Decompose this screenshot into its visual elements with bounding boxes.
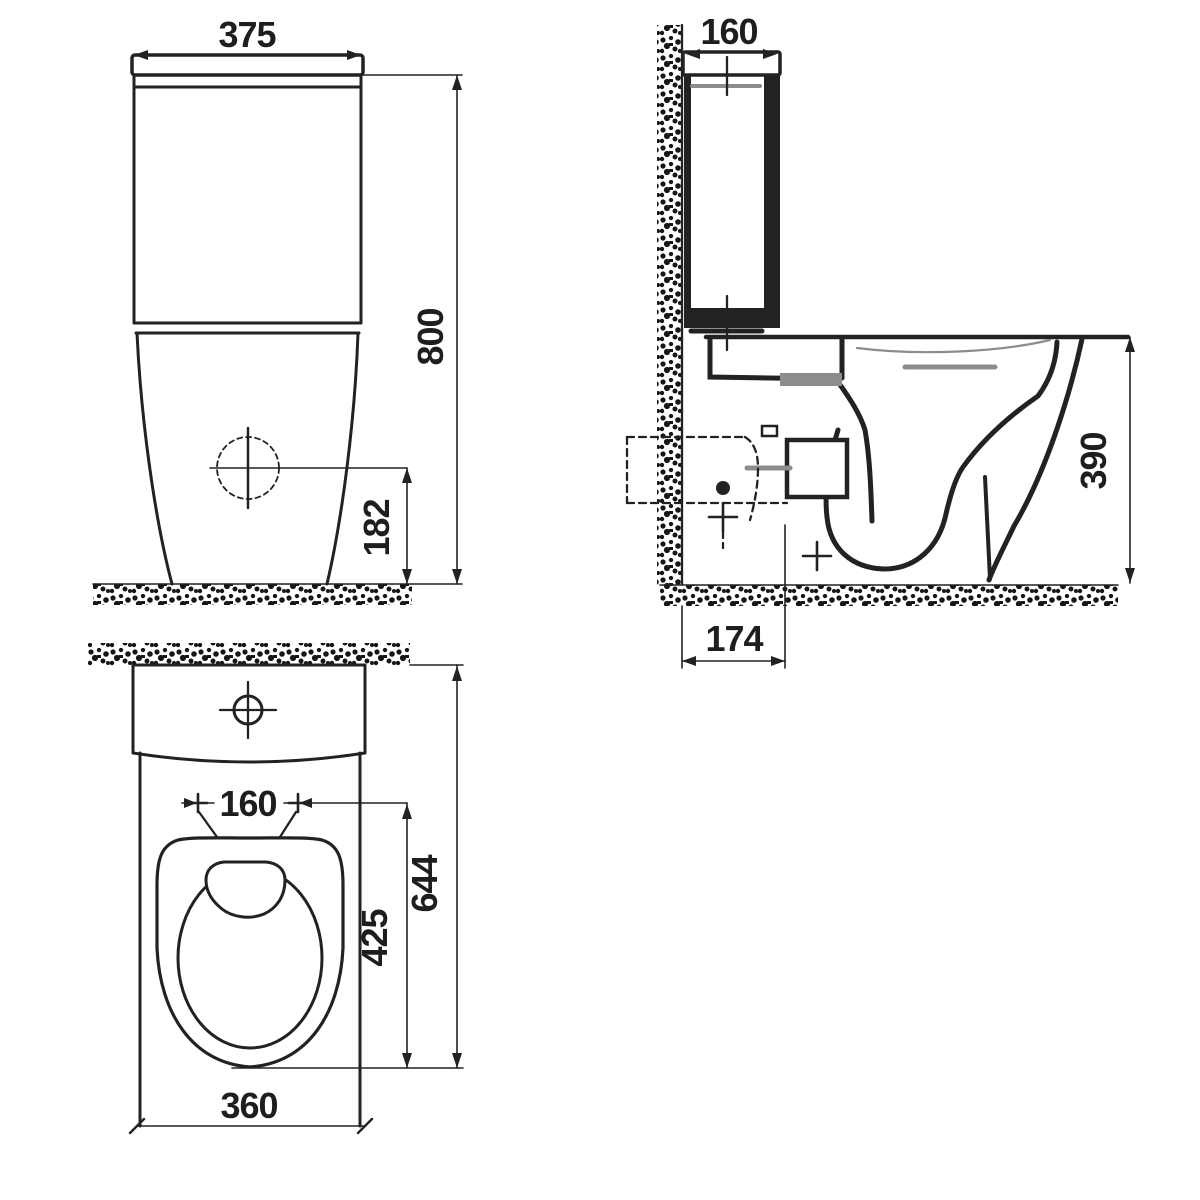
foot-front-line <box>985 477 990 579</box>
vertical-outlet-plus-mark <box>803 542 831 570</box>
front-view: 375 800 182 <box>93 14 462 605</box>
rear-outer-profile <box>989 339 1082 580</box>
side-floor-hatch <box>660 585 1118 606</box>
dim-arrow <box>402 1053 412 1068</box>
toilet-dimension-drawing: 375 800 182 160 <box>0 0 1200 1200</box>
hidden-outlet-fitting <box>762 426 777 436</box>
cistern-front-curve <box>133 753 365 762</box>
dim-label-rim-height: 390 <box>1073 432 1114 489</box>
cistern-lid-front <box>132 55 363 75</box>
seat-hinge-gray <box>780 373 842 386</box>
outlet-socket-section <box>787 440 847 497</box>
dim-label-inlet-height: 182 <box>356 499 397 556</box>
bowl-left-profile <box>137 333 172 584</box>
dim-arrow <box>1125 568 1135 583</box>
dim-arrow <box>184 798 197 808</box>
technical-drawing-canvas: 375 800 182 160 <box>0 0 1200 1200</box>
dim-label-front-width-plan: 360 <box>220 1085 277 1126</box>
dim-arrow <box>402 804 412 819</box>
flush-distributor-outline <box>206 862 285 917</box>
dim-arrow <box>452 1053 462 1068</box>
dim-label-front-width: 375 <box>218 14 276 55</box>
plan-view: 160 644 425 360 <box>88 643 463 1133</box>
dim-arrow <box>682 656 696 666</box>
lid-datum-cross-lines <box>220 682 276 738</box>
trap-and-inner-rear-profile <box>826 342 1057 569</box>
under-rim-gray-curve <box>857 340 1050 352</box>
cistern-bottom-section <box>684 308 780 328</box>
outlet-plus-mark <box>709 503 737 531</box>
bowl-right-profile <box>327 333 358 584</box>
hidden-outlet-bend <box>745 437 758 520</box>
dim-arrow <box>299 798 312 808</box>
dim-arrow <box>452 75 462 90</box>
dim-arrow <box>452 666 462 681</box>
front-floor-hatch <box>93 584 412 605</box>
dim-label-cistern-depth: 160 <box>700 11 757 52</box>
dim-label-overall-depth: 644 <box>404 854 445 912</box>
plan-wall-hatch <box>88 643 410 666</box>
cistern-back-wall-section <box>684 75 691 315</box>
dim-label-outlet-offset: 174 <box>705 618 763 659</box>
dim-arrow <box>452 569 462 584</box>
dim-arrow <box>402 468 412 483</box>
dim-label-front-height: 800 <box>410 308 451 365</box>
dim-arrow <box>402 569 412 584</box>
side-view: 160 390 174 <box>627 11 1135 668</box>
dim-arrow <box>771 656 785 666</box>
cistern-front-wall-section <box>764 75 780 315</box>
dim-label-hole-spacing: 160 <box>219 783 276 824</box>
dim-label-seat-depth: 425 <box>354 908 395 966</box>
outlet-center-dot <box>716 481 730 495</box>
